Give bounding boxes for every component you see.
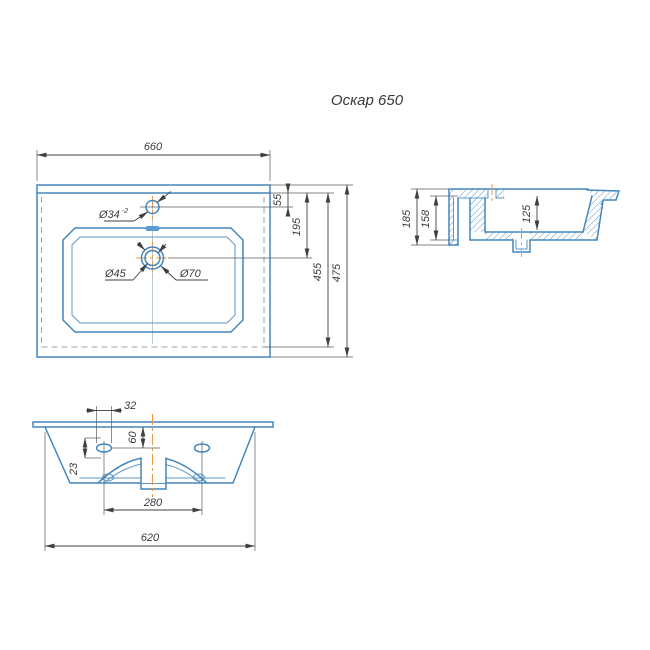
faucet-dia-label: Ø34-2: [98, 208, 128, 221]
front-view: 32 60 23 280 620: [33, 400, 273, 551]
svg-text:23: 23: [68, 462, 80, 476]
svg-text:55: 55: [272, 193, 284, 206]
svg-text:185: 185: [401, 209, 413, 228]
drain-inner-label: Ø45: [104, 268, 127, 280]
dim-depth-455: 455: [312, 193, 328, 347]
dim-depth-475: 475: [331, 185, 347, 357]
dim-basin-depth-125: 125: [521, 196, 537, 230]
side-section-view: 185 158 125: [401, 184, 619, 257]
dim-drain-195: 195: [291, 193, 307, 258]
svg-text:280: 280: [143, 497, 163, 509]
svg-text:620: 620: [141, 532, 160, 544]
svg-text:125: 125: [521, 204, 533, 223]
dim-width-660: 660: [37, 141, 270, 181]
svg-text:475: 475: [331, 263, 343, 282]
svg-text:455: 455: [312, 262, 324, 281]
svg-text:60: 60: [127, 431, 139, 444]
faucet-dia-callout: Ø34-2: [98, 192, 171, 222]
drain-outer-label: Ø70: [179, 268, 202, 280]
dim-hole-spacing-280: 280: [104, 497, 202, 510]
dim-body-width-620: 620: [45, 432, 255, 551]
technical-drawing: Оскар 650 Ø34-2: [0, 0, 650, 650]
dim-faucet-55: 55: [272, 184, 288, 216]
top-view: Ø34-2 Ø45 Ø70 660: [37, 141, 353, 357]
drawing-title: Оскар 650: [331, 92, 404, 109]
svg-text:158: 158: [420, 209, 432, 228]
svg-text:660: 660: [144, 141, 163, 153]
svg-text:32: 32: [124, 400, 136, 412]
svg-text:195: 195: [291, 217, 303, 236]
drawing-sheet: Оскар 650 Ø34-2: [0, 0, 650, 650]
overflow-slot: [146, 226, 160, 231]
dim-hole-height-23: 23: [68, 438, 101, 476]
